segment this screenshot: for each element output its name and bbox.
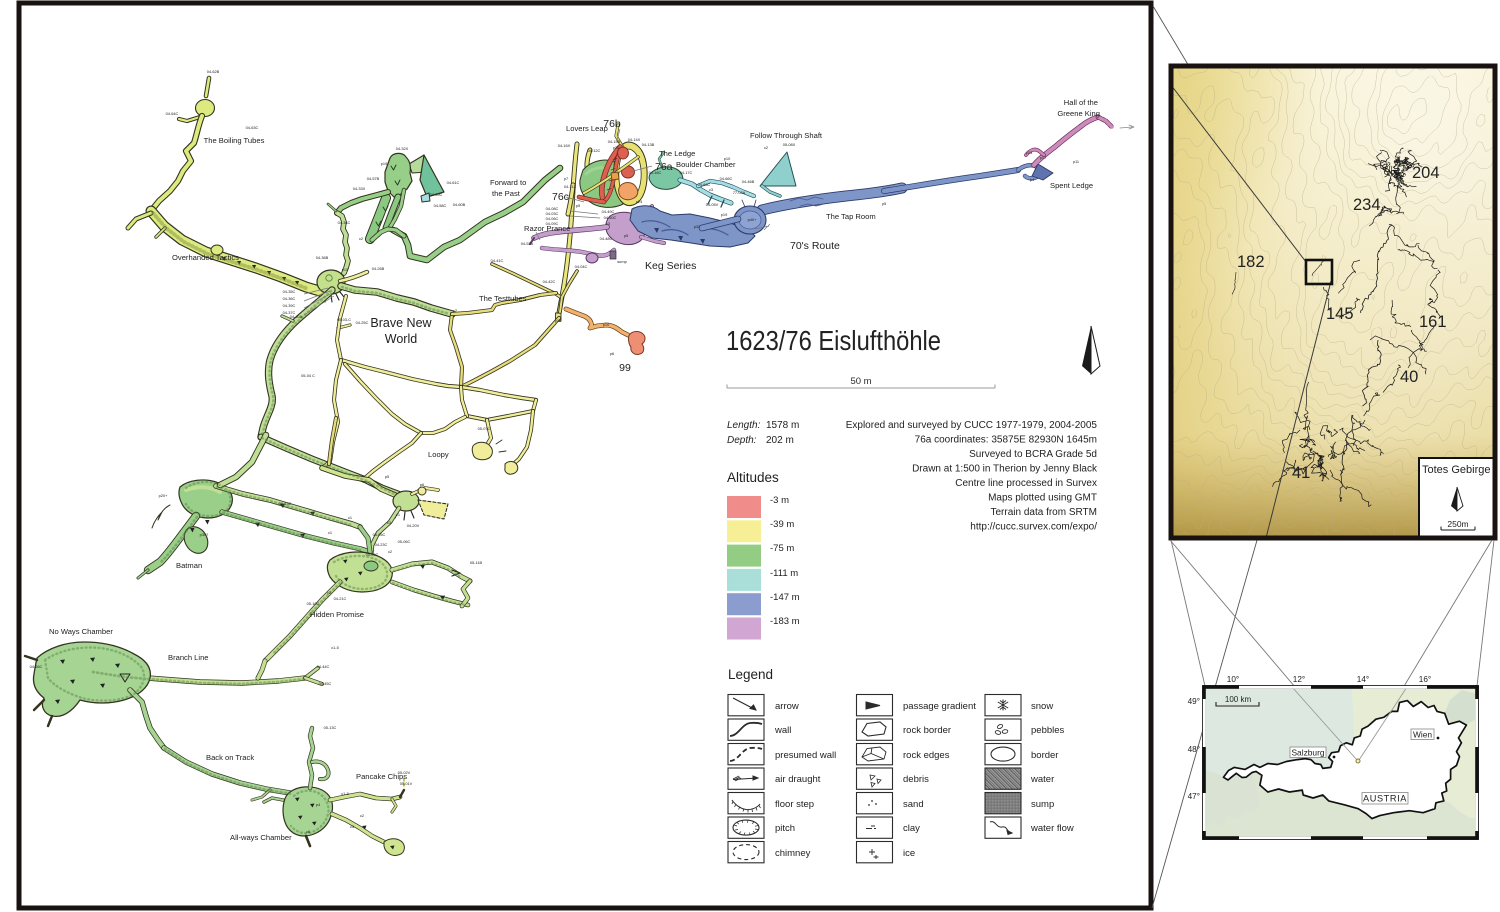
svg-text:10°: 10° <box>1227 675 1239 684</box>
svg-text:Follow Through Shaft: Follow Through Shaft <box>750 131 823 140</box>
svg-text:clay: clay <box>903 823 920 834</box>
svg-text:04-26B: 04-26B <box>372 266 385 271</box>
svg-text:204: 204 <box>1412 164 1440 182</box>
svg-text:passage gradient: passage gradient <box>903 701 976 712</box>
svg-text:sump: sump <box>617 259 627 264</box>
svg-text:pebbles: pebbles <box>1031 725 1065 736</box>
svg-text:04-63C: 04-63C <box>246 125 259 130</box>
svg-text:p24: p24 <box>636 199 643 204</box>
svg-text:05-06C: 05-06C <box>398 539 411 544</box>
svg-text:ice: ice <box>903 848 915 859</box>
svg-text:c1-5: c1-5 <box>331 645 339 650</box>
svg-text:p6: p6 <box>610 351 614 356</box>
svg-text:-183 m: -183 m <box>770 616 800 627</box>
svg-text:04-23C: 04-23C <box>375 542 388 547</box>
svg-text:-39 m: -39 m <box>770 519 794 530</box>
svg-text:c3: c3 <box>350 824 354 829</box>
svg-text:No Ways Chamber: No Ways Chamber <box>49 627 113 636</box>
svg-text:p40+: p40+ <box>748 217 757 222</box>
svg-text:161: 161 <box>1419 313 1447 331</box>
svg-text:p5: p5 <box>576 203 580 208</box>
svg-text:pitch: pitch <box>775 823 795 834</box>
svg-text:04-39C: 04-39C <box>283 303 296 308</box>
svg-text:04-33X: 04-33X <box>353 186 366 191</box>
svg-text:air draught: air draught <box>775 774 821 785</box>
svg-text:Drawn at 1:500 in Therion by J: Drawn at 1:500 in Therion by Jenny Black <box>912 464 1098 475</box>
svg-text:p30?: p30? <box>200 532 209 537</box>
svg-text:Centre line processed in Surve: Centre line processed in Survex <box>955 478 1097 489</box>
svg-text:Forward to: Forward to <box>490 178 526 187</box>
svg-text:05-08X: 05-08X <box>783 142 796 147</box>
svg-text:04-05V: 04-05V <box>706 202 719 207</box>
svg-text:04-32X: 04-32X <box>396 146 409 151</box>
svg-text:04-45C: 04-45C <box>319 681 332 686</box>
svg-text:p17: p17 <box>1040 155 1047 160</box>
svg-text:Wien: Wien <box>1413 730 1432 740</box>
svg-text:p19: p19 <box>381 161 388 166</box>
svg-text:04-66C: 04-66C <box>720 176 733 181</box>
svg-text:04-17C: 04-17C <box>680 170 693 175</box>
svg-text:rock edges: rock edges <box>903 750 950 761</box>
svg-text:AUSTRIA: AUSTRIA <box>1363 794 1407 804</box>
svg-text:debris: debris <box>903 774 929 785</box>
svg-text:04-50C: 04-50C <box>604 215 617 220</box>
svg-text:77-03A: 77-03A <box>733 190 746 195</box>
svg-text:Lovers Leap: Lovers Leap <box>566 124 608 133</box>
svg-text:The Tap Room: The Tap Room <box>826 212 876 221</box>
svg-text:04-12C: 04-12C <box>588 148 601 153</box>
svg-text:145: 145 <box>1326 305 1354 323</box>
svg-text:p20+: p20+ <box>159 493 168 498</box>
svg-text:12°: 12° <box>1293 675 1305 684</box>
svg-text:05-01V: 05-01V <box>400 781 413 786</box>
svg-text:p20: p20 <box>613 145 620 150</box>
svg-text:chimney: chimney <box>775 848 811 859</box>
svg-text:04-04C: 04-04C <box>575 264 588 269</box>
svg-text:p10: p10 <box>603 322 610 327</box>
svg-text:-75 m: -75 m <box>770 543 794 554</box>
svg-text:05-11B: 05-11B <box>470 560 483 565</box>
svg-text:16°: 16° <box>1419 675 1431 684</box>
svg-text:Totes Gebirge: Totes Gebirge <box>1422 464 1490 476</box>
svg-text:04-40A: 04-40A <box>290 314 303 319</box>
svg-text:202 m: 202 m <box>766 435 794 446</box>
svg-text:234: 234 <box>1353 196 1381 214</box>
svg-text:c1: c1 <box>348 515 352 520</box>
svg-text:c3: c3 <box>387 520 391 525</box>
svg-text:p5: p5 <box>882 201 886 206</box>
svg-text:arrow: arrow <box>775 701 799 712</box>
svg-text:sand: sand <box>903 799 924 810</box>
svg-text:http://cucc.survex.com/expo/: http://cucc.survex.com/expo/ <box>970 522 1097 533</box>
svg-text:Depth:: Depth: <box>727 435 757 446</box>
svg-text:c1: c1 <box>396 512 400 517</box>
svg-text:04-53A: 04-53A <box>521 241 534 246</box>
svg-text:p19: p19 <box>721 212 728 217</box>
svg-text:04-62B: 04-62B <box>207 69 220 74</box>
svg-text:05-04 C: 05-04 C <box>301 373 315 378</box>
svg-text:wall: wall <box>774 725 791 736</box>
svg-text:All-ways Chamber: All-ways Chamber <box>230 833 292 842</box>
svg-text:04-42C: 04-42C <box>543 279 556 284</box>
svg-text:-111 m: -111 m <box>770 568 798 579</box>
svg-text:04-11X: 04-11X <box>564 184 577 189</box>
svg-text:04-13B: 04-13B <box>642 142 655 147</box>
svg-text:Boulder Chamber: Boulder Chamber <box>676 160 736 169</box>
svg-text:p5: p5 <box>385 474 389 479</box>
svg-text:Greene King: Greene King <box>1057 109 1100 118</box>
svg-text:-147 m: -147 m <box>770 592 800 603</box>
svg-text:04-41C: 04-41C <box>491 258 504 263</box>
svg-text:Explored and surveyed by CUCC: Explored and surveyed by CUCC 1977-1979,… <box>846 420 1098 431</box>
svg-text:04-21C: 04-21C <box>334 596 347 601</box>
svg-text:Branch Line: Branch Line <box>168 653 209 662</box>
svg-text:76a coordinates: 35875E 82930N: 76a coordinates: 35875E 82930N 1645m <box>915 435 1097 446</box>
svg-text:c6: c6 <box>306 829 310 834</box>
svg-text:Keg Series: Keg Series <box>645 260 696 272</box>
svg-text:04-49C: 04-49C <box>602 209 615 214</box>
svg-text:c2: c2 <box>764 145 768 150</box>
svg-text:04-46B: 04-46B <box>742 179 755 184</box>
svg-text:04-44C: 04-44C <box>317 664 330 669</box>
svg-text:Legend: Legend <box>728 667 773 682</box>
svg-text:p6: p6 <box>420 482 424 487</box>
svg-text:05-10C: 05-10C <box>307 601 320 606</box>
svg-text:04-36B: 04-36B <box>316 255 329 260</box>
svg-text:41: 41 <box>1292 464 1310 482</box>
svg-text:c2: c2 <box>453 308 457 313</box>
svg-text:Batman: Batman <box>176 561 202 570</box>
svg-text:floor step: floor step <box>775 799 814 810</box>
svg-text:snow: snow <box>1031 701 1053 712</box>
svg-text:Altitudes: Altitudes <box>727 470 779 485</box>
svg-text:Brave New: Brave New <box>370 316 432 330</box>
svg-text:p32: p32 <box>694 224 701 229</box>
svg-text:p12: p12 <box>555 318 562 323</box>
svg-text:rock border: rock border <box>903 725 951 736</box>
svg-text:40: 40 <box>1400 368 1418 386</box>
svg-text:p5: p5 <box>624 233 628 238</box>
svg-text:05-05C: 05-05C <box>373 532 386 537</box>
svg-text:p11: p11 <box>1073 159 1079 164</box>
svg-text:1578 m: 1578 m <box>766 420 799 431</box>
svg-text:sump: sump <box>1031 799 1054 810</box>
svg-text:water flow: water flow <box>1030 823 1074 834</box>
svg-text:the Past: the Past <box>492 189 521 198</box>
svg-text:04-35C: 04-35C <box>283 289 296 294</box>
svg-text:Length:: Length: <box>727 420 761 431</box>
svg-text:c2: c2 <box>359 236 363 241</box>
svg-text:Hidden Promise: Hidden Promise <box>310 610 364 619</box>
svg-text:47°: 47° <box>1188 792 1200 801</box>
svg-text:Maps plotted using GMT: Maps plotted using GMT <box>988 493 1097 504</box>
svg-text:99: 99 <box>619 362 631 374</box>
svg-text:c3: c3 <box>709 187 713 192</box>
svg-text:04-60B: 04-60B <box>453 202 466 207</box>
svg-text:The Ledge: The Ledge <box>659 149 695 158</box>
svg-text:water: water <box>1030 774 1054 785</box>
svg-text:100 km: 100 km <box>1225 695 1252 704</box>
svg-text:border: border <box>1031 750 1058 761</box>
svg-text:70's Route: 70's Route <box>790 240 840 252</box>
svg-text:Hall of the: Hall of the <box>1064 98 1098 107</box>
svg-text:p15: p15 <box>342 267 349 272</box>
svg-text:Back on Track: Back on Track <box>206 753 254 762</box>
svg-text:p7: p7 <box>564 176 568 181</box>
svg-text:c2: c2 <box>388 549 392 554</box>
svg-text:05-09C: 05-09C <box>366 552 379 557</box>
svg-text:Razor Prance: Razor Prance <box>524 224 570 233</box>
svg-text:04-15B: 04-15B <box>608 139 621 144</box>
svg-text:Pancake Chips: Pancake Chips <box>356 772 407 781</box>
svg-text:presumed wall: presumed wall <box>775 750 836 761</box>
svg-text:04-58C: 04-58C <box>434 203 447 208</box>
svg-text:04-66C: 04-66C <box>698 182 711 187</box>
svg-text:Surveyed to BCRA Grade 5d: Surveyed to BCRA Grade 5d <box>969 449 1097 460</box>
svg-text:04-16X: 04-16X <box>558 143 571 148</box>
svg-text:The Boiling Tubes: The Boiling Tubes <box>204 136 265 145</box>
svg-text:48°: 48° <box>1188 745 1200 754</box>
svg-text:World: World <box>385 332 417 346</box>
svg-text:04-34C: 04-34C <box>338 220 351 225</box>
svg-text:Terrain data from SRTM: Terrain data from SRTM <box>990 507 1097 518</box>
svg-text:c2: c2 <box>360 813 364 818</box>
svg-text:04-59C: 04-59C <box>430 192 443 197</box>
svg-text:1623/76 Eislufthöhle: 1623/76 Eislufthöhle <box>726 325 941 356</box>
svg-text:04-20V: 04-20V <box>407 523 420 528</box>
svg-text:04-61C: 04-61C <box>447 180 460 185</box>
svg-text:250m: 250m <box>1447 519 1468 529</box>
svg-text:04-64C: 04-64C <box>166 111 179 116</box>
svg-text:c1: c1 <box>328 530 332 535</box>
svg-text:The Testtubes: The Testtubes <box>479 294 527 303</box>
svg-text:49°: 49° <box>1188 697 1200 706</box>
svg-text:04-56C: 04-56C <box>30 664 43 669</box>
svg-text:Overhanded Tactics: Overhanded Tactics <box>172 253 239 262</box>
svg-text:05-13C: 05-13C <box>324 725 337 730</box>
svg-text:182: 182 <box>1237 253 1265 271</box>
svg-text:04-36C: 04-36C <box>283 296 296 301</box>
svg-text:05-07C: 05-07C <box>478 426 491 431</box>
svg-text:50 m: 50 m <box>850 376 871 387</box>
svg-text:76b: 76b <box>603 118 621 130</box>
svg-text:Spent Ledge: Spent Ledge <box>1050 181 1093 190</box>
svg-text:c1-5: c1-5 <box>341 791 349 796</box>
svg-text:05-03-C: 05-03-C <box>337 317 351 322</box>
svg-text:04-48C: 04-48C <box>600 236 613 241</box>
svg-text:Salzburg: Salzburg <box>1291 748 1324 758</box>
svg-text:c2: c2 <box>327 590 331 595</box>
svg-text:Loopy: Loopy <box>428 450 449 459</box>
svg-text:p23: p23 <box>1026 150 1033 155</box>
svg-text:04-57B: 04-57B <box>367 176 380 181</box>
svg-text:14°: 14° <box>1357 675 1369 684</box>
svg-text:-3 m: -3 m <box>770 495 789 506</box>
svg-text:05-13C: 05-13C <box>279 501 292 506</box>
svg-text:c3: c3 <box>606 221 610 226</box>
svg-text:04-14X: 04-14X <box>628 137 641 142</box>
svg-text:76a: 76a <box>655 161 673 173</box>
svg-text:04-25C: 04-25C <box>356 320 369 325</box>
